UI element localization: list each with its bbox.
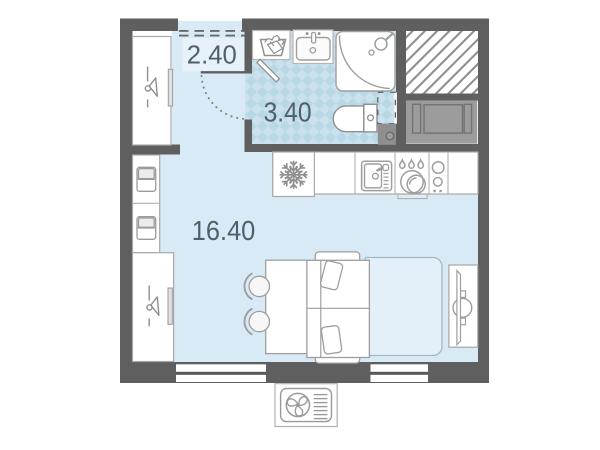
svg-text:2.40: 2.40 [187,40,237,70]
svg-text:3.40: 3.40 [264,96,312,127]
svg-text:16.40: 16.40 [192,215,256,246]
